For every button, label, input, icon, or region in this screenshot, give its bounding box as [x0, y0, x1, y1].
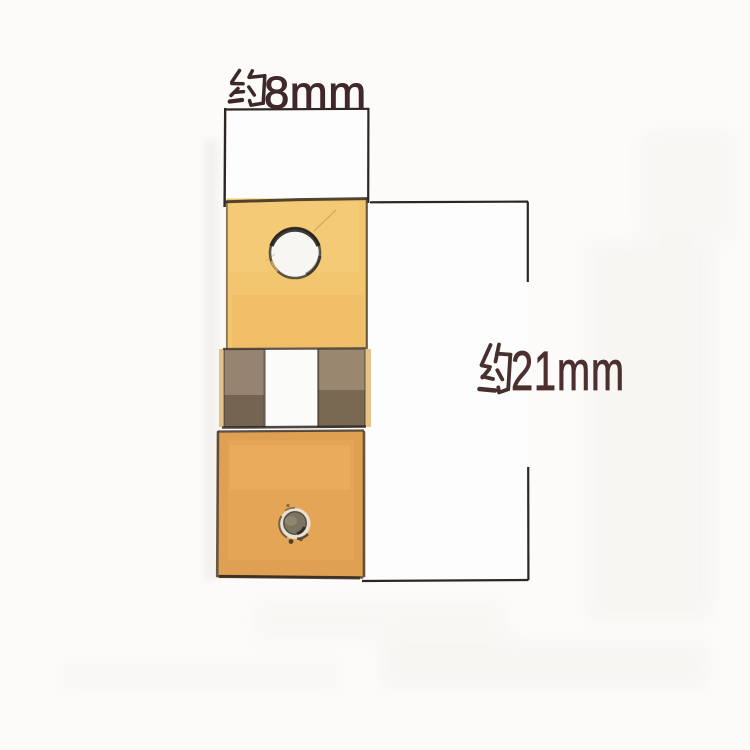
svg-text:8mm: 8mm: [264, 67, 367, 118]
svg-text:21mm: 21mm: [511, 341, 625, 403]
